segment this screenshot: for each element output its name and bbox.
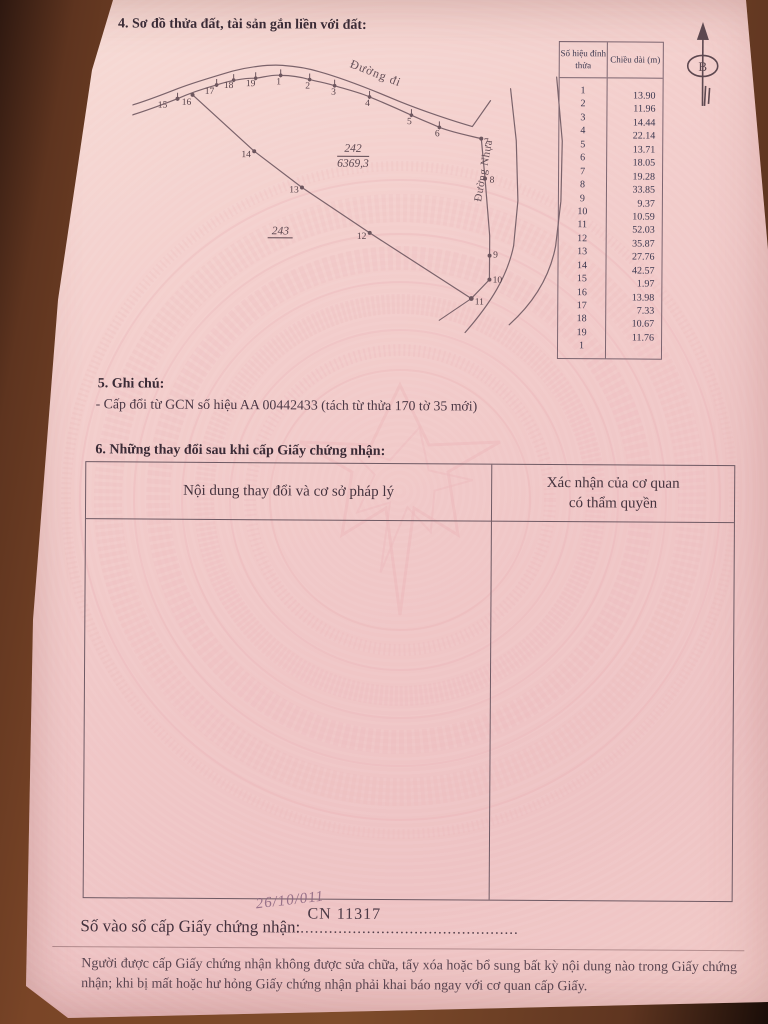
- map-vertex-label: 9: [493, 251, 498, 261]
- vertex-number: 5: [559, 138, 606, 152]
- map-vertex-label: 16: [182, 98, 192, 108]
- edge-length: 11.96: [607, 103, 655, 117]
- edge-length: 42.57: [606, 264, 654, 278]
- vertex-number: 1: [560, 84, 607, 98]
- edge-length: 22.14: [607, 130, 655, 144]
- edge-length: 13.98: [606, 291, 654, 305]
- edge-length: 10.59: [607, 210, 655, 224]
- parcel-242-label: 242 6369,3: [337, 142, 369, 172]
- edge-length: 18.05: [607, 157, 655, 171]
- legal-notice: Người được cấp Giấy chứng nhận không đượ…: [81, 954, 768, 998]
- vertex-number: 10: [559, 205, 606, 219]
- parcel-number: 242: [337, 142, 369, 158]
- length-column: 13.9011.9614.4422.1413.7118.0519.2833.85…: [606, 89, 656, 345]
- changes-col2-line1: Xác nhận của cơ quan: [547, 475, 680, 492]
- edge-length: 1.97: [606, 277, 654, 291]
- edge-length: 35.87: [607, 237, 655, 251]
- map-vertex-label: 14: [241, 150, 251, 160]
- vertex-number: 17: [558, 299, 605, 313]
- map-vertex-label: 13: [289, 185, 299, 195]
- edge-length: 14.44: [607, 116, 655, 130]
- map-vertex-label: 8: [490, 176, 495, 186]
- vertex-number: 12: [559, 232, 606, 246]
- changes-table: Nội dung thay đổi và cơ sở pháp lý Xác n…: [83, 461, 736, 902]
- map-vertex-label: 11: [475, 298, 484, 308]
- vertex-number: 4: [559, 124, 606, 138]
- parcel-map-lines: [131, 48, 583, 363]
- section5-note: - Cấp đổi từ GCN số hiệu AA 00442433 (tá…: [96, 396, 478, 414]
- changes-table-divider: [489, 465, 493, 900]
- register-line: Số vào sổ cấp Giấy chứng nhận:..........…: [80, 916, 518, 939]
- legal-notice-line1: Người được cấp Giấy chứng nhận không đượ…: [81, 956, 668, 975]
- vertex-length-table: Số hiệu đỉnh thửa Chiều dài (m) 12345678…: [557, 41, 664, 360]
- vertex-number: 11: [559, 218, 606, 232]
- map-vertex-label: 12: [357, 232, 367, 242]
- section5-title: 5. Ghi chú:: [98, 376, 165, 392]
- vertex-number: 16: [558, 286, 605, 300]
- changes-col2-line2: có thẩm quyền: [569, 495, 657, 512]
- map-vertex-label: 17: [205, 87, 215, 97]
- vertex-number: 14: [558, 259, 605, 273]
- vertex-number: 8: [559, 178, 606, 192]
- edge-length: 27.76: [607, 251, 655, 265]
- register-label: Số vào sổ cấp Giấy chứng nhận:: [80, 916, 300, 936]
- edge-length: 52.03: [607, 224, 655, 238]
- vertex-number: 7: [559, 165, 606, 179]
- north-arrow-icon: B: [674, 14, 731, 118]
- adjacent-parcel-243-label: 243: [268, 225, 293, 238]
- section6-title: 6. Những thay đổi sau khi cấp Giấy chứng…: [95, 442, 385, 460]
- map-vertex-label: 6: [435, 129, 440, 139]
- map-vertex-label: 18: [224, 81, 234, 91]
- parcel-diagram: Đường đi Đường Nhựa 242 6369,3 243 15161…: [131, 48, 583, 363]
- edge-length: 19.28: [607, 170, 655, 184]
- edge-length: 33.85: [607, 183, 655, 197]
- dotted-line: ........................................…: [300, 920, 519, 937]
- vertex-number: 18: [558, 312, 605, 326]
- map-vertex-label: 4: [365, 99, 370, 109]
- footer-rule: [52, 946, 744, 951]
- page-content: 4. Sơ đồ thửa đất, tài sản gắn liền với …: [0, 0, 768, 1024]
- vertex-number: 9: [559, 192, 606, 206]
- changes-col1-header: Nội dung thay đổi và cơ sở pháp lý: [86, 462, 491, 520]
- map-vertex-label: 5: [407, 117, 412, 127]
- edge-length: 7.33: [606, 304, 654, 318]
- parcel-area: 6369,3: [337, 157, 369, 172]
- map-vertex-label: 2: [305, 82, 310, 92]
- vertex-column: 123456789101112131415161718191: [558, 84, 607, 353]
- vertex-number: 13: [559, 245, 606, 259]
- length-column-header: Chiều dài (m): [608, 42, 663, 78]
- edge-length: 13.71: [607, 143, 655, 157]
- north-label: B: [698, 59, 707, 74]
- certificate-page: 4. Sơ đồ thửa đất, tài sản gắn liền với …: [0, 0, 768, 1024]
- map-vertex-label: 10: [493, 276, 503, 286]
- changes-col2-header: Xác nhận của cơ quan có thẩm quyền: [492, 465, 734, 522]
- vertex-number: 19: [558, 326, 605, 340]
- map-vertex-label: 19: [246, 79, 256, 89]
- vertex-column-header: Số hiệu đỉnh thửa: [560, 42, 607, 78]
- map-vertex-label: 3: [331, 88, 336, 98]
- map-vertex-label: 1: [276, 77, 281, 87]
- edge-length: 13.90: [608, 89, 656, 103]
- edge-length: 11.76: [606, 331, 654, 345]
- edge-length: 10.67: [606, 318, 654, 332]
- edge-length: 9.37: [607, 197, 655, 211]
- vertex-number: 2: [559, 98, 606, 112]
- section4-title: 4. Sơ đồ thửa đất, tài sản gắn liền với …: [118, 16, 367, 34]
- vertex-number: 3: [559, 111, 606, 125]
- vertex-number: 15: [558, 272, 605, 286]
- map-vertex-label: 7: [484, 138, 489, 148]
- photo-of-certificate: 4. Sơ đồ thửa đất, tài sản gắn liền với …: [0, 0, 768, 1024]
- map-vertex-label: 15: [158, 101, 168, 111]
- vertex-number: 1: [558, 339, 605, 353]
- vertex-number: 6: [559, 151, 606, 165]
